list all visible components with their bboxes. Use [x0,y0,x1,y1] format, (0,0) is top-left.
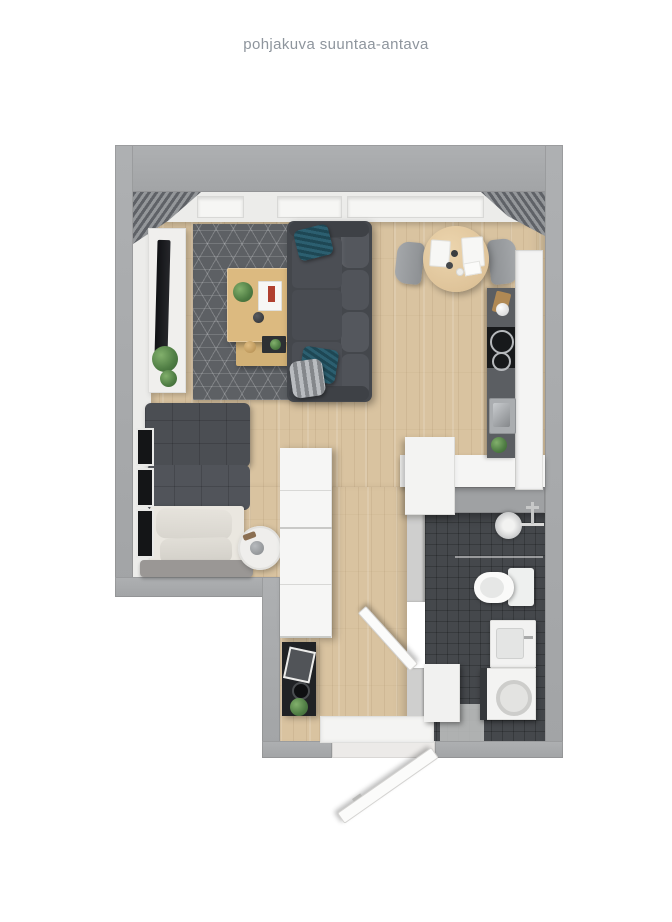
kitchen-cabinets-right [515,250,543,490]
wall-top [115,145,563,192]
wardrobe-division-1 [280,490,332,491]
wardrobe-division-2 [280,527,332,529]
cooktop-burner-large [490,330,514,354]
sideboard-plant [152,346,178,372]
bathroom-wall-left-upper [407,513,425,602]
console-plant [290,698,308,716]
washbasin-faucet [524,636,533,639]
lower-table-gold-bowl [244,341,256,353]
floorplan-page: pohjakuva suuntaa-antava [0,0,672,922]
table-cup-1 [451,250,458,257]
table-bowl-small [456,268,464,276]
sofa-back-cushion-3 [341,312,369,352]
bed-headboard [140,560,253,577]
shower-head [495,512,522,539]
shower-valve-handle [526,506,539,509]
wall-frame-2 [136,468,154,507]
entry-door [337,747,439,824]
bed-duvet-lower [147,465,250,510]
washing-machine-door [496,680,532,716]
bathroom-cabinet [424,664,460,722]
wardrobe [280,448,332,638]
window-pane-3 [347,196,484,218]
side-table-sphere [250,541,264,555]
kettle [496,303,509,316]
window-pane-2 [277,196,342,218]
table-cup-2 [446,262,453,269]
coffee-table-plant [233,282,253,302]
lower-table-tray-plant [270,339,281,350]
bed-pillow-1 [156,508,233,540]
kitchen-plant [491,437,507,453]
wall-bottom-left-of-door [262,741,332,758]
bed-duvet-upper [145,403,250,467]
toilet-bowl-inner [480,577,504,598]
sideboard-plant-small [160,370,177,387]
sofa-seat-cushion-2 [292,290,342,340]
sofa-back-cushion-2 [341,270,369,310]
washbasin-bowl [496,628,524,659]
wall-right [545,145,563,758]
kitchen-sink-basin [493,403,510,427]
cooktop-burner-small [492,352,511,371]
patterned-pillow [289,358,327,399]
shower-glass [455,556,543,558]
entry-door-mat [320,716,434,743]
coffee-table-book-accent [268,286,275,302]
wall-frame-1 [136,428,154,466]
wall-frame-3 [136,509,154,558]
window-pane-1 [197,196,244,218]
tall-cabinet [405,437,455,515]
wall-bottom-right-of-door [435,741,563,758]
washing-machine-side-panel [480,668,487,720]
dining-chair-left [394,241,425,286]
wall-hallway-left [262,577,280,758]
plan-caption: pohjakuva suuntaa-antava [0,36,672,53]
wardrobe-division-3 [280,584,332,585]
coffee-table-bowl [253,312,264,323]
wall-left [115,145,133,597]
